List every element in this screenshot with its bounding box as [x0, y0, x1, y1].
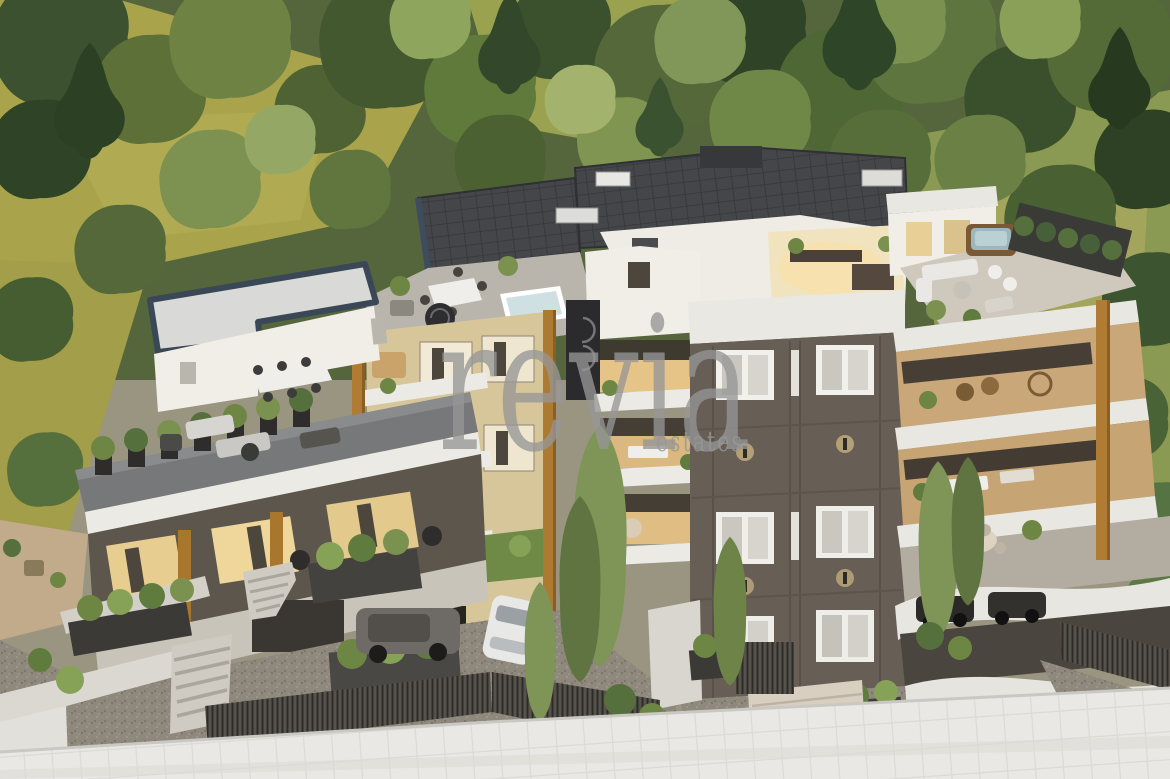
entry-gate — [736, 642, 794, 694]
roof-skylight — [596, 172, 630, 186]
hot-tub — [966, 224, 1016, 256]
render-image: revia estates — [0, 0, 1170, 779]
watermark: revia estates — [438, 278, 751, 494]
watermark-subtext: estates — [656, 425, 744, 458]
roof-chimney-box — [700, 146, 762, 168]
watermark-text: revia — [438, 278, 751, 494]
scene: revia estates — [0, 0, 1170, 779]
roof-skylight — [862, 170, 902, 186]
ac-unit — [556, 208, 598, 223]
